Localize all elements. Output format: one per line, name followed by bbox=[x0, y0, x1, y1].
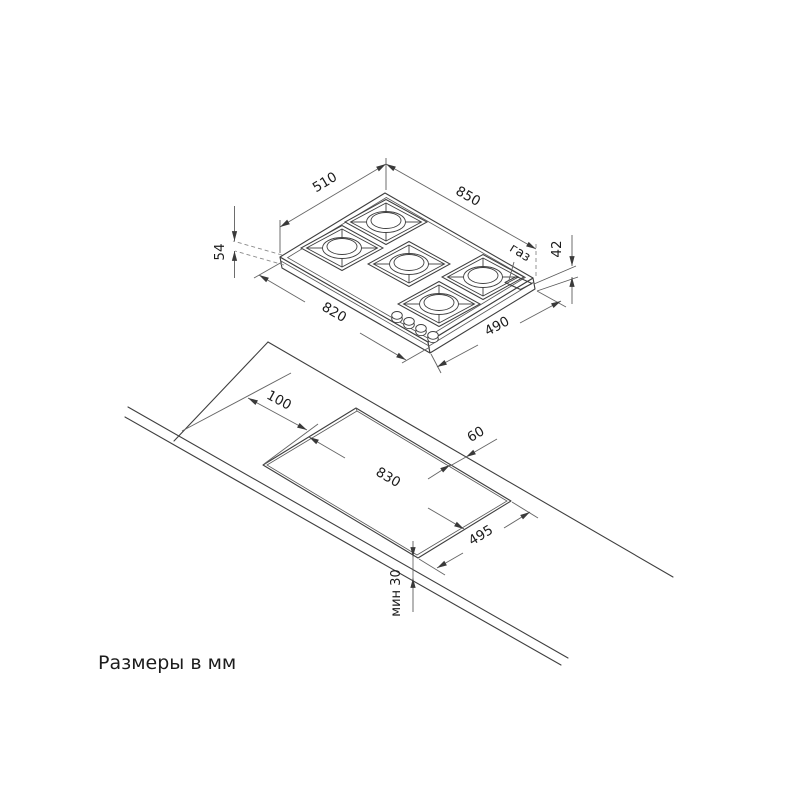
dim-830: 830 bbox=[309, 437, 464, 529]
dim-54-label: 54 bbox=[212, 243, 228, 260]
dim-850-label: 850 bbox=[453, 183, 483, 210]
dim-100-label: 100 bbox=[264, 387, 294, 413]
control-knob-1 bbox=[392, 312, 403, 323]
worktop-front-edge-top bbox=[128, 407, 568, 658]
dim-42: 42 bbox=[534, 235, 578, 304]
dim-60: 60 bbox=[428, 423, 497, 479]
dim-min30-label: мин 30 bbox=[389, 569, 404, 616]
dim-42-label: 42 bbox=[549, 240, 565, 257]
hob-isometric-view: газ 510 850 54 42 bbox=[212, 158, 578, 373]
gas-label: газ bbox=[507, 241, 533, 265]
installation-cutout-view: 100 60 830 495 мин 30 bbox=[125, 342, 673, 665]
dim-100: 100 bbox=[182, 373, 318, 464]
control-knob-3 bbox=[416, 325, 427, 336]
dim-830-label: 830 bbox=[373, 464, 403, 491]
control-knob-2 bbox=[404, 318, 415, 329]
technical-drawing-page: газ 510 850 54 42 bbox=[0, 0, 800, 800]
worktop-front-edge-bottom bbox=[125, 417, 561, 665]
units-note: Размеры в мм bbox=[98, 652, 236, 674]
worktop-cut-edge bbox=[174, 342, 268, 441]
hob-installation-diagram: газ 510 850 54 42 bbox=[0, 0, 800, 800]
control-knob-4 bbox=[428, 332, 439, 343]
dim-510-label: 510 bbox=[310, 169, 340, 196]
dim-60-label: 60 bbox=[464, 423, 487, 446]
